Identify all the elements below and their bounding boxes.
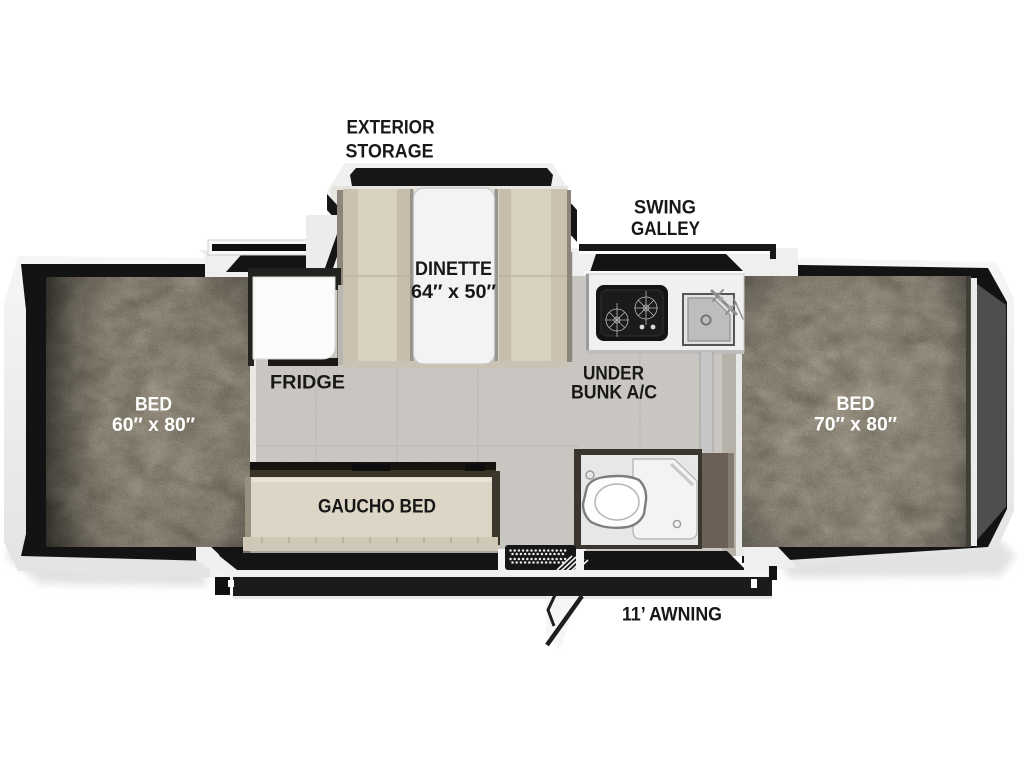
svg-text:FRIDGE: FRIDGE <box>270 373 345 394</box>
svg-text:BUNK A/C: BUNK A/C <box>571 383 657 404</box>
svg-text:UNDER: UNDER <box>583 364 644 385</box>
svg-text:DINETTE: DINETTE <box>415 259 492 280</box>
svg-text:11’ AWNING: 11’ AWNING <box>622 605 722 626</box>
svg-text:GAUCHO BED: GAUCHO BED <box>318 497 436 518</box>
svg-text:64″ x 50″: 64″ x 50″ <box>411 282 496 303</box>
svg-text:60″ x 80″: 60″ x 80″ <box>112 415 195 436</box>
svg-text:GALLEY: GALLEY <box>631 219 700 240</box>
svg-text:BED: BED <box>837 394 875 415</box>
svg-text:SWING: SWING <box>634 198 696 219</box>
svg-text:STORAGE: STORAGE <box>346 142 434 163</box>
svg-text:70″ x 80″: 70″ x 80″ <box>814 415 897 436</box>
svg-text:BED: BED <box>135 395 172 416</box>
svg-text:EXTERIOR: EXTERIOR <box>347 118 435 139</box>
